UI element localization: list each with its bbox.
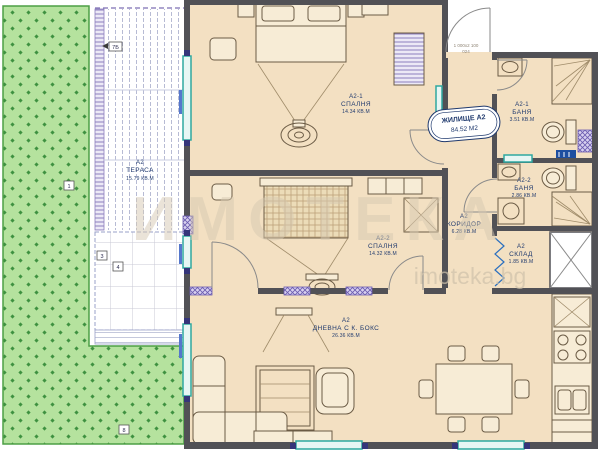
marker-3-label: 3 <box>100 254 103 260</box>
marker-7b-label: 7Б <box>112 45 119 51</box>
storage-id: А2 <box>517 244 525 250</box>
window <box>183 56 191 140</box>
chair-icon <box>515 380 529 398</box>
terrace-edge-hatch <box>95 9 104 230</box>
window <box>458 441 524 449</box>
watermark-site: imoteka.bg <box>414 263 527 289</box>
marker-1: 1 <box>64 181 74 190</box>
bath1-name: БАНЯ <box>512 109 531 116</box>
window <box>183 324 191 396</box>
bed-icon <box>256 2 346 62</box>
terrace-id: А2 <box>136 160 144 166</box>
chair-icon <box>448 346 465 361</box>
chair-icon <box>419 380 433 398</box>
living-name: ДНЕВНА С К. БОКС <box>313 325 380 332</box>
marker-8: 8 <box>119 425 129 434</box>
chair-icon <box>210 38 236 60</box>
chair-icon <box>482 346 499 361</box>
marker-4-label: 4 <box>116 265 119 271</box>
bedroom1-area: 14.34 КВ.М <box>342 109 370 115</box>
marker-8-label: 8 <box>122 428 125 434</box>
storage-name: СКЛАД <box>509 251 533 258</box>
door-spec-line1: 1 000х2 100 <box>454 43 479 48</box>
bedroom1-name: СПАЛНЯ <box>341 101 371 108</box>
toilet-icon <box>542 120 576 144</box>
terrace-area: 15.79 КВ.М <box>126 176 154 182</box>
living-id: А2 <box>342 318 350 324</box>
duct-box <box>556 150 576 159</box>
marker-4: 4 <box>113 262 123 271</box>
armchair-icon <box>316 368 354 414</box>
chair-icon <box>448 417 465 432</box>
bath2-name: БАНЯ <box>514 185 533 192</box>
bath1-area: 3.51 КВ.М <box>510 117 535 123</box>
vent <box>504 155 532 162</box>
marker-3: 3 <box>97 251 107 260</box>
floor-plan-page: А2 ТЕРАСА 15.79 КВ.М 7Б 3 4 1 8 <box>0 0 600 450</box>
terrace-name: ТЕРАСА <box>126 167 154 174</box>
unit-badge: ЖИЛИЩЕ А2 84.52 М2 <box>427 105 502 143</box>
bath1-id: А2-1 <box>515 102 529 108</box>
floor-plan-image: А2 ТЕРАСА 15.79 КВ.М 7Б 3 4 1 8 <box>0 0 600 450</box>
wardrobe-icon <box>394 33 424 85</box>
marker-1-label: 1 <box>67 184 70 190</box>
watermark-brand: ИМОТЕКА <box>132 185 508 254</box>
living-area: 26.36 КВ.М <box>332 333 360 339</box>
toilet-icon <box>542 166 576 190</box>
bath2-id: А2-2 <box>517 178 531 184</box>
window <box>296 441 362 449</box>
bedroom1-id: А2-1 <box>349 94 363 100</box>
elevator-shaft <box>550 232 592 288</box>
door-spec-line2: 024 <box>462 49 470 54</box>
chair-icon <box>482 417 499 432</box>
kitchen-counter <box>552 294 592 444</box>
shaft-hatch <box>578 130 594 152</box>
bath2-area: 2.86 КВ.М <box>512 193 537 199</box>
